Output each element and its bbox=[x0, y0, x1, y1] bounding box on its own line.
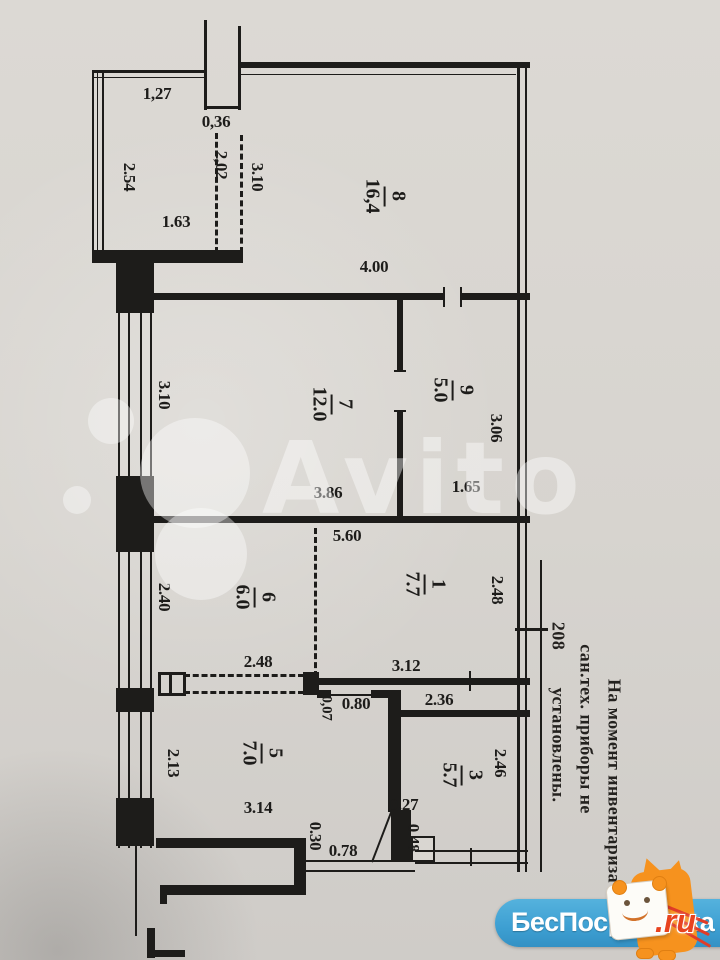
shaft-bottom-line bbox=[204, 106, 241, 109]
branding-domain-suffix: .ru bbox=[655, 903, 696, 940]
watermark-dot-small bbox=[88, 398, 134, 444]
room-label-3: 3 5.7 bbox=[438, 763, 485, 788]
cat-eye-right bbox=[644, 897, 650, 903]
dim-balcony-bottom: 1.63 bbox=[162, 212, 191, 232]
protrusion-end-tick bbox=[160, 895, 167, 904]
room-7-area: 12.0 bbox=[308, 387, 331, 422]
wall-room1-bottom bbox=[316, 678, 530, 685]
wall-room1-bottom-tick bbox=[469, 671, 471, 691]
balcony-wall-top-inner bbox=[92, 77, 206, 78]
room-label-6: 6 6.0 bbox=[231, 585, 278, 610]
wall-top bbox=[240, 62, 530, 68]
room-label-1: 1 7.7 bbox=[401, 572, 448, 597]
room-label-9: 9 5.0 bbox=[429, 378, 476, 403]
room-1-number: 1 bbox=[424, 574, 449, 594]
shaft-left-line bbox=[204, 20, 207, 110]
watermark-brand-text: Avito bbox=[262, 420, 587, 537]
dim-sill-width: 0.78 bbox=[329, 841, 358, 861]
closet-dashed-top bbox=[184, 674, 304, 677]
lower-balcony-side-line bbox=[135, 828, 137, 936]
dim-niche-height: 0.48 bbox=[403, 824, 423, 853]
partition-dashed-right bbox=[240, 135, 243, 253]
dim-niche-width: 0.27 bbox=[390, 795, 419, 815]
wall-room8-bottom-left bbox=[118, 293, 445, 300]
balcony-window-band bbox=[92, 70, 104, 262]
wall-top-inner-line bbox=[240, 74, 516, 75]
note-line-1: На момент инвентариза bbox=[604, 679, 625, 883]
room-7-number: 7 bbox=[331, 394, 356, 414]
floor-plan-photo: 8 16,4 9 5.0 7 12.0 6 6.0 1 7.7 5 7.0 3 … bbox=[0, 0, 720, 960]
dim-door-width: 0.80 bbox=[342, 694, 371, 714]
cat-foot-left bbox=[636, 948, 654, 959]
wall-5-3-divider bbox=[388, 690, 401, 812]
watermark-dot-medium bbox=[155, 508, 247, 600]
dim-room8-width: 4.00 bbox=[360, 257, 389, 277]
room3-window-tick bbox=[470, 848, 472, 866]
room-1-area: 7.7 bbox=[401, 572, 424, 597]
dim-wall-offset: 0,07 bbox=[318, 695, 335, 720]
wall-room8-bottom-right bbox=[461, 293, 530, 300]
cat-foot-right bbox=[658, 950, 676, 960]
door-tick-a bbox=[443, 287, 445, 307]
room-8-area: 16,4 bbox=[361, 179, 384, 214]
left-wall-pier-1 bbox=[116, 263, 154, 313]
dim-room7-height: 3.10 bbox=[154, 381, 174, 410]
watermark-dot-tiny bbox=[63, 486, 91, 514]
room-3-number: 3 bbox=[461, 765, 486, 785]
threshold-line-1 bbox=[305, 860, 415, 862]
dim-partition-left: 2,02 bbox=[211, 151, 231, 180]
protrusion-bottom bbox=[160, 885, 306, 895]
note-line-3: установлены. bbox=[548, 688, 569, 803]
room-6-area: 6.0 bbox=[231, 585, 254, 610]
closet-dashed-bottom bbox=[184, 691, 304, 694]
note-line-2: сан.тех. приборы не bbox=[576, 644, 597, 814]
protrusion-top bbox=[156, 838, 306, 848]
left-wall-pier-3 bbox=[116, 688, 154, 712]
shaft-right-line bbox=[238, 26, 241, 110]
dim-balcony-top: 1,27 bbox=[143, 84, 172, 104]
door-jamb-bottom bbox=[394, 410, 406, 412]
dashed-divider-6-1 bbox=[314, 528, 317, 686]
wall-7-9-upper bbox=[397, 300, 403, 372]
threshold-line-2 bbox=[305, 870, 415, 872]
door-tick-b bbox=[460, 287, 462, 307]
room-6-number: 6 bbox=[254, 587, 279, 607]
dim-room1-height: 2.48 bbox=[487, 576, 507, 605]
door-swing-line bbox=[371, 810, 393, 863]
dim-room3-height: 2.46 bbox=[490, 749, 510, 778]
room-9-number: 9 bbox=[452, 380, 477, 400]
room-5-number: 5 bbox=[261, 743, 286, 763]
wall-neighbor-line bbox=[540, 560, 542, 872]
dim-sill-height: 0.30 bbox=[305, 822, 325, 851]
dim-closet-width: 2.48 bbox=[244, 652, 273, 672]
room-5-area: 7.0 bbox=[238, 741, 261, 766]
room-3-area: 5.7 bbox=[438, 763, 461, 788]
lower-balcony-corner-h bbox=[147, 950, 185, 957]
tick-apartment-208 bbox=[515, 628, 548, 631]
room-label-8: 8 16,4 bbox=[361, 179, 408, 214]
balcony-wall-bottom bbox=[92, 250, 243, 263]
room-label-5: 5 7.0 bbox=[238, 741, 285, 766]
closet-left-box bbox=[158, 672, 186, 696]
dim-shaft-width: 0,36 bbox=[202, 112, 231, 132]
dim-room5-width: 3.14 bbox=[244, 798, 273, 818]
apartment-number: 208 bbox=[548, 622, 569, 650]
room-8-number: 8 bbox=[384, 186, 409, 206]
dim-room5-height: 2.13 bbox=[163, 749, 183, 778]
closet-left-box-divider bbox=[169, 672, 172, 694]
cat-paw-right bbox=[652, 876, 667, 891]
dim-partition-right: 3.10 bbox=[247, 163, 267, 192]
wall-room3-top bbox=[395, 710, 530, 717]
cat-paw-left bbox=[612, 880, 627, 895]
left-window-band bbox=[118, 263, 152, 848]
dim-room3-top-width: 2.36 bbox=[425, 690, 454, 710]
room-label-7: 7 12.0 bbox=[308, 387, 355, 422]
room-9-area: 5.0 bbox=[429, 378, 452, 403]
doorway-stub-right bbox=[371, 690, 389, 698]
dim-room1-width: 3.12 bbox=[392, 656, 421, 676]
balcony-wall-top bbox=[92, 70, 206, 73]
door-jamb-top bbox=[394, 370, 406, 372]
dim-balcony-left: 2.54 bbox=[119, 163, 139, 192]
